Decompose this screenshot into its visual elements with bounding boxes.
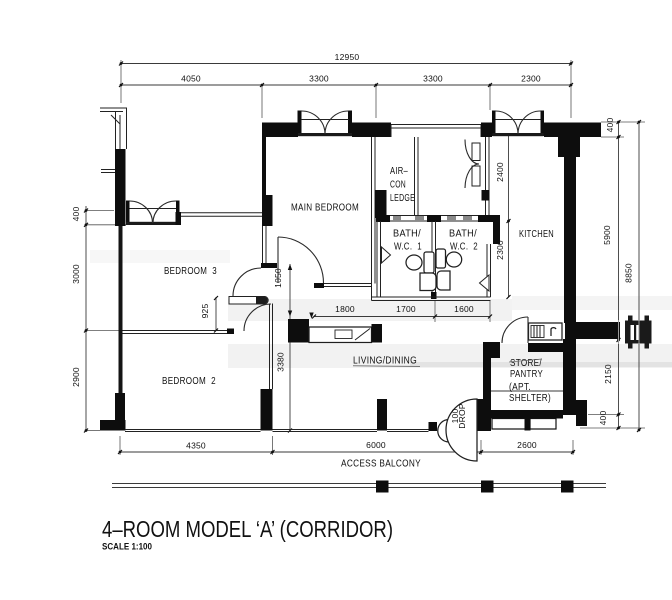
svg-text:2900: 2900 bbox=[71, 367, 81, 387]
svg-text:PANTRY: PANTRY bbox=[510, 368, 543, 380]
svg-text:1800: 1800 bbox=[335, 304, 355, 314]
svg-text:1700: 1700 bbox=[396, 304, 416, 314]
svg-text:400: 400 bbox=[598, 411, 608, 426]
svg-text:4–ROOM MODEL ‘A’ (CORRIDOR): 4–ROOM MODEL ‘A’ (CORRIDOR) bbox=[102, 516, 393, 542]
svg-text:8850: 8850 bbox=[624, 263, 634, 283]
svg-text:4050: 4050 bbox=[181, 74, 201, 84]
svg-text:DROP: DROP bbox=[457, 403, 467, 428]
svg-text:3380: 3380 bbox=[276, 352, 286, 372]
svg-text:3000: 3000 bbox=[71, 264, 81, 284]
svg-text:2400: 2400 bbox=[495, 162, 505, 182]
svg-text:BEDROOM 3: BEDROOM 3 bbox=[164, 265, 217, 277]
svg-text:W.C. 2: W.C. 2 bbox=[450, 241, 478, 253]
svg-text:W.C. 1: W.C. 1 bbox=[394, 241, 422, 253]
svg-text:BATH/: BATH/ bbox=[393, 228, 421, 240]
svg-text:KITCHEN: KITCHEN bbox=[519, 228, 554, 240]
svg-text:12950: 12950 bbox=[335, 52, 360, 62]
svg-text:BEDROOM 2: BEDROOM 2 bbox=[162, 375, 216, 387]
svg-text:ACCESS BALCONY: ACCESS BALCONY bbox=[341, 458, 421, 470]
svg-text:400: 400 bbox=[605, 118, 615, 133]
svg-text:2300: 2300 bbox=[521, 74, 541, 84]
svg-text:LEDGE: LEDGE bbox=[390, 192, 415, 204]
svg-text:SCALE 1:100: SCALE 1:100 bbox=[102, 542, 152, 552]
svg-text:925: 925 bbox=[200, 304, 210, 319]
svg-text:LIVING/DINING: LIVING/DINING bbox=[353, 355, 417, 367]
svg-text:1600: 1600 bbox=[454, 304, 474, 314]
svg-text:2150: 2150 bbox=[603, 364, 613, 384]
svg-text:6000: 6000 bbox=[366, 440, 386, 450]
svg-text:AIR–: AIR– bbox=[390, 165, 408, 177]
svg-text:400: 400 bbox=[71, 207, 81, 222]
svg-text:MAIN BEDROOM: MAIN BEDROOM bbox=[291, 202, 359, 214]
svg-text:3300: 3300 bbox=[423, 74, 443, 84]
svg-text:CON: CON bbox=[390, 179, 406, 191]
svg-text:SHELTER): SHELTER) bbox=[509, 392, 551, 404]
svg-text:3300: 3300 bbox=[309, 74, 329, 84]
svg-text:BATH/: BATH/ bbox=[449, 228, 477, 240]
svg-text:4350: 4350 bbox=[186, 441, 206, 451]
svg-text:5900: 5900 bbox=[602, 225, 612, 245]
svg-text:2600: 2600 bbox=[517, 440, 537, 450]
